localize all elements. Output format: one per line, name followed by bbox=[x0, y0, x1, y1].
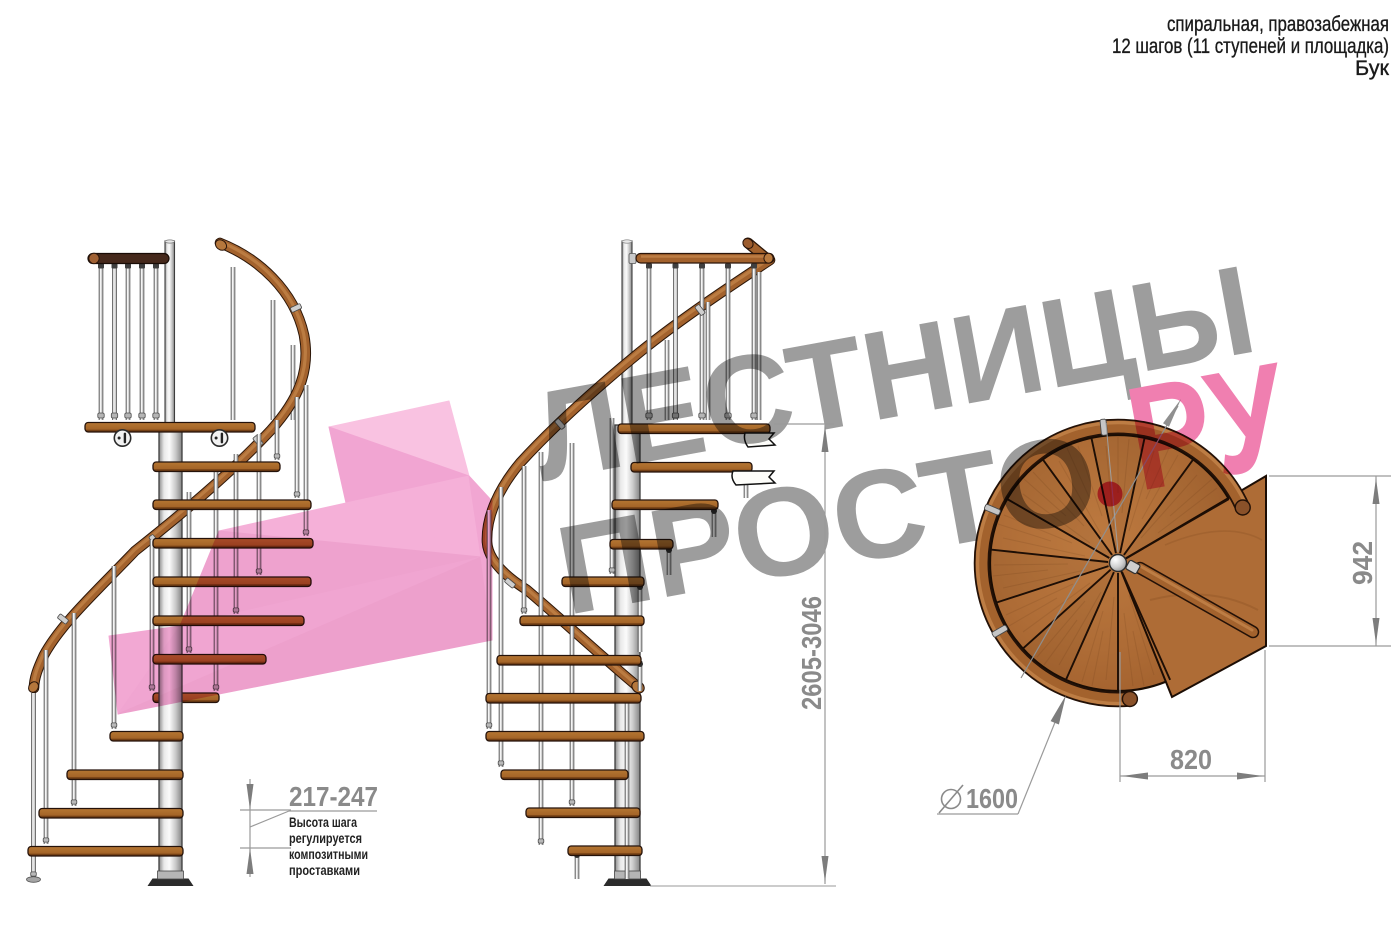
svg-text:РУ: РУ bbox=[1115, 332, 1302, 523]
svg-text:942: 942 bbox=[1347, 541, 1378, 585]
svg-text:Бук: Бук bbox=[1355, 57, 1390, 80]
svg-text:217-247: 217-247 bbox=[289, 781, 378, 812]
svg-text:проставками: проставками bbox=[289, 863, 360, 878]
svg-text:спиральная, правозабежная: спиральная, правозабежная bbox=[1167, 13, 1389, 36]
svg-text:12 шагов (11 ступеней и площад: 12 шагов (11 ступеней и площадка) bbox=[1112, 35, 1389, 58]
svg-text:820: 820 bbox=[1170, 744, 1212, 775]
svg-text:1600: 1600 bbox=[966, 783, 1018, 814]
svg-text:Высота шага: Высота шага bbox=[289, 815, 357, 830]
svg-text:2605-3046: 2605-3046 bbox=[796, 596, 827, 710]
svg-text:регулируется: регулируется bbox=[289, 831, 362, 846]
svg-text:композитными: композитными bbox=[289, 847, 368, 862]
